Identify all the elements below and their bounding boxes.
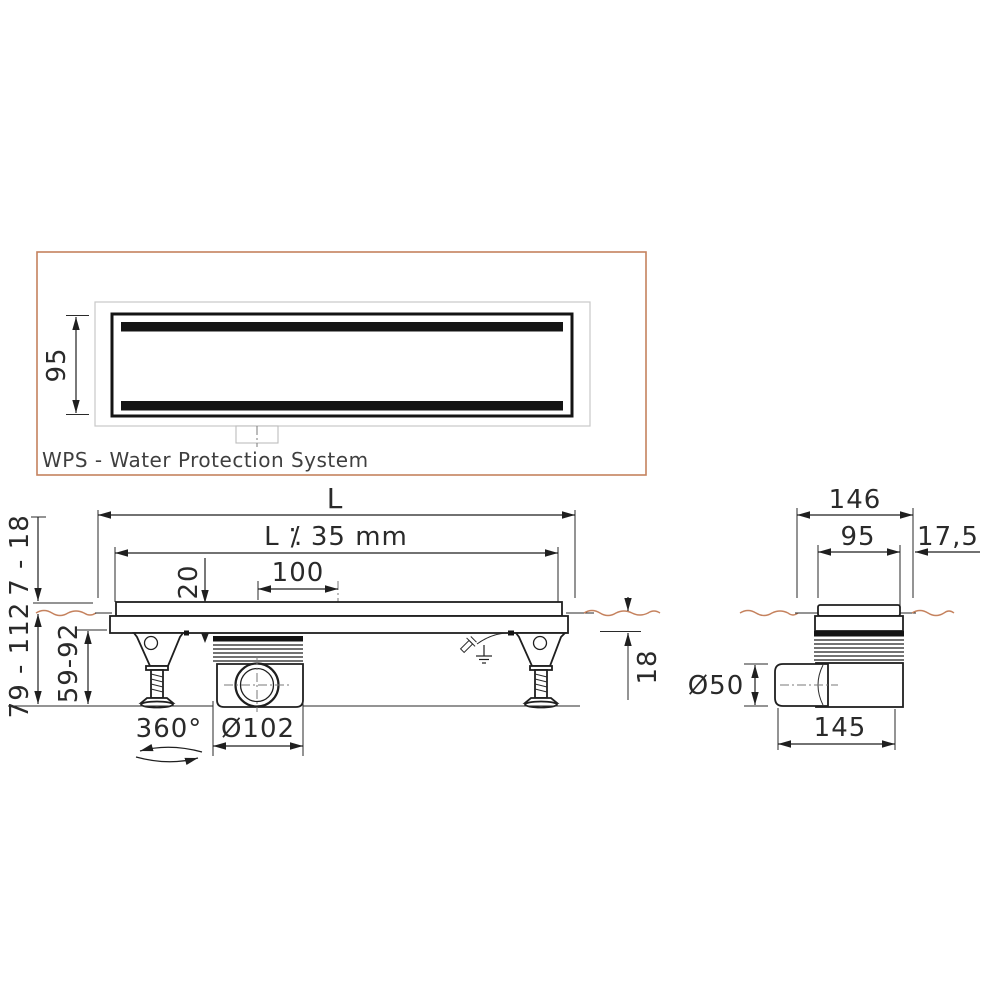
ground-screw-icon bbox=[458, 635, 478, 655]
dim-tile-range-label: 7 - 18 bbox=[5, 514, 35, 596]
end-view-group: 146 95 17,5 Ø50 bbox=[688, 485, 980, 750]
right-foot bbox=[508, 631, 565, 708]
trap-ribs bbox=[213, 645, 303, 661]
dim-body-range-label: 59-92 bbox=[54, 623, 84, 704]
rotation-label: 360° bbox=[136, 714, 203, 744]
earth-symbol-icon bbox=[476, 645, 492, 663]
tile-wavy-right bbox=[584, 611, 660, 616]
dim-install-range-label: 79 - 112 bbox=[5, 602, 35, 719]
rotation-annotation: 360° bbox=[136, 714, 203, 762]
end-lower-body bbox=[816, 663, 903, 707]
dim-total-length-label: L bbox=[327, 482, 344, 515]
grate-slot-top bbox=[121, 322, 563, 332]
end-ribs bbox=[814, 640, 904, 660]
grate-slot-bottom bbox=[121, 401, 563, 411]
tile-wavy-end-right bbox=[912, 611, 954, 616]
dim-grate-length-label: L ⁒ 35 mm bbox=[264, 522, 408, 552]
ground-wire bbox=[477, 633, 509, 644]
wps-caption: WPS - Water Protection System bbox=[42, 448, 369, 472]
tile-wavy-left bbox=[36, 611, 96, 616]
side-view-group: L L ⁒ 35 mm 100 20 bbox=[5, 482, 663, 762]
top-view-group: 95 WPS - Water Protection System bbox=[37, 252, 646, 475]
dim-trap-diameter-label: Ø102 bbox=[221, 714, 295, 744]
end-gasket-band bbox=[814, 631, 904, 637]
channel-end-body bbox=[815, 616, 903, 631]
left-foot-clip bbox=[184, 631, 189, 636]
drain-technical-drawing: 95 WPS - Water Protection System L L ⁒ 3… bbox=[0, 0, 1000, 1000]
dim-outlet-diameter-label: Ø50 bbox=[688, 671, 745, 701]
dim-flange-width-label: 146 bbox=[829, 485, 882, 515]
trap-gasket-band bbox=[213, 636, 303, 642]
rotation-arrow-bottom bbox=[136, 757, 198, 762]
channel-flange-side bbox=[116, 602, 562, 616]
dim-under-tile-label: 18 bbox=[633, 649, 663, 684]
dim-grate-width-label: 95 bbox=[42, 347, 72, 382]
grate-end-profile bbox=[818, 605, 900, 616]
dim-grate-depth-label: 20 bbox=[174, 564, 204, 599]
grounding bbox=[458, 633, 509, 663]
dim-edge-offset-label: 17,5 bbox=[917, 522, 979, 552]
rotation-arrow-top bbox=[140, 747, 202, 752]
dim-grate-width-end-label: 95 bbox=[840, 522, 875, 552]
dim-outlet-offset-label: 100 bbox=[272, 558, 325, 588]
tile-wavy-end-left bbox=[740, 611, 798, 616]
dim-body-width-label: 145 bbox=[814, 713, 867, 743]
technical-drawing-page: 95 WPS - Water Protection System L L ⁒ 3… bbox=[0, 0, 1000, 1000]
left-foot bbox=[134, 631, 189, 708]
channel-body-side bbox=[110, 616, 568, 633]
